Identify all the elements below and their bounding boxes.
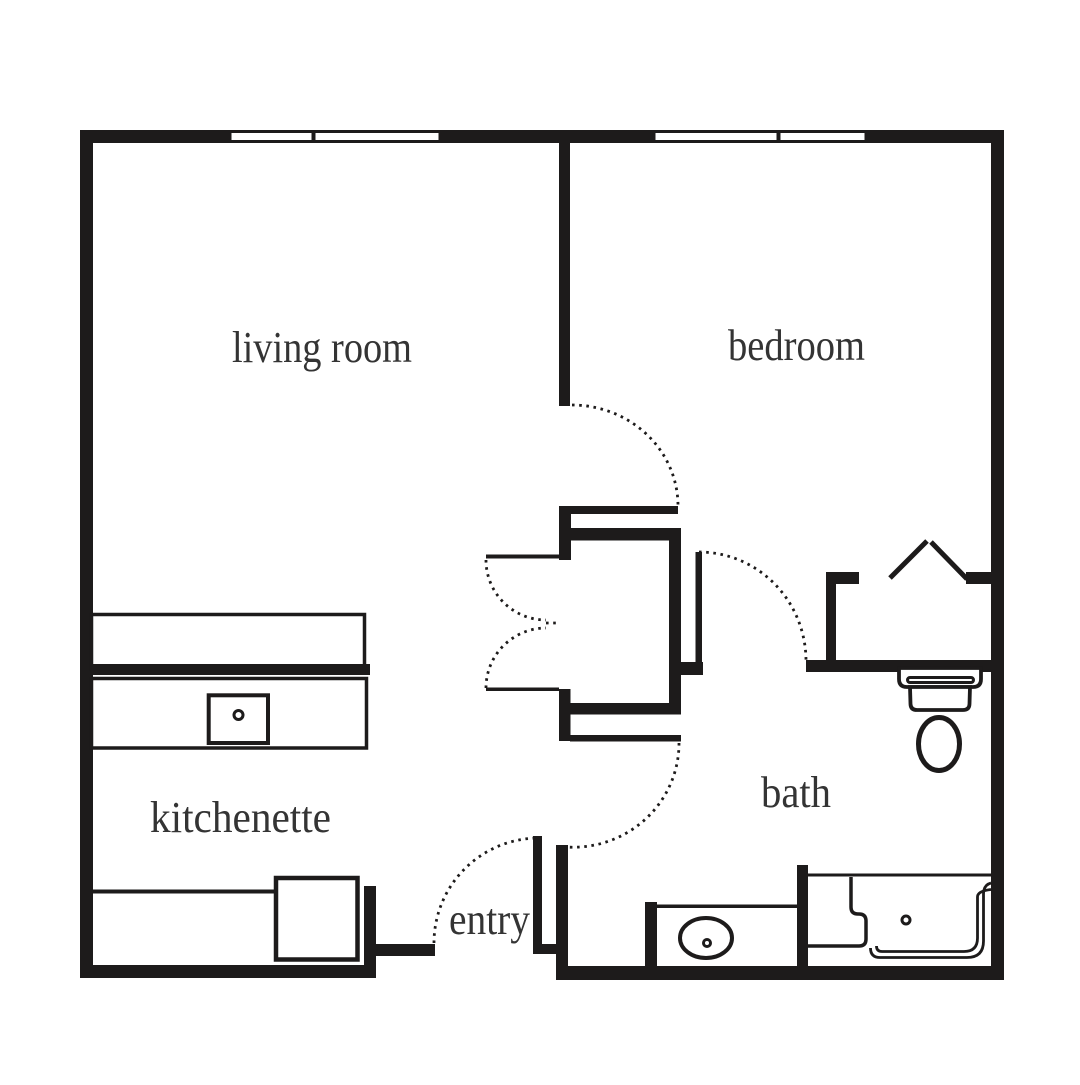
- svg-text:kitchenette: kitchenette: [150, 793, 331, 842]
- svg-text:bedroom: bedroom: [728, 321, 865, 370]
- svg-text:entry: entry: [449, 895, 530, 944]
- svg-text:bath: bath: [761, 768, 831, 817]
- svg-text:living room: living room: [232, 323, 412, 372]
